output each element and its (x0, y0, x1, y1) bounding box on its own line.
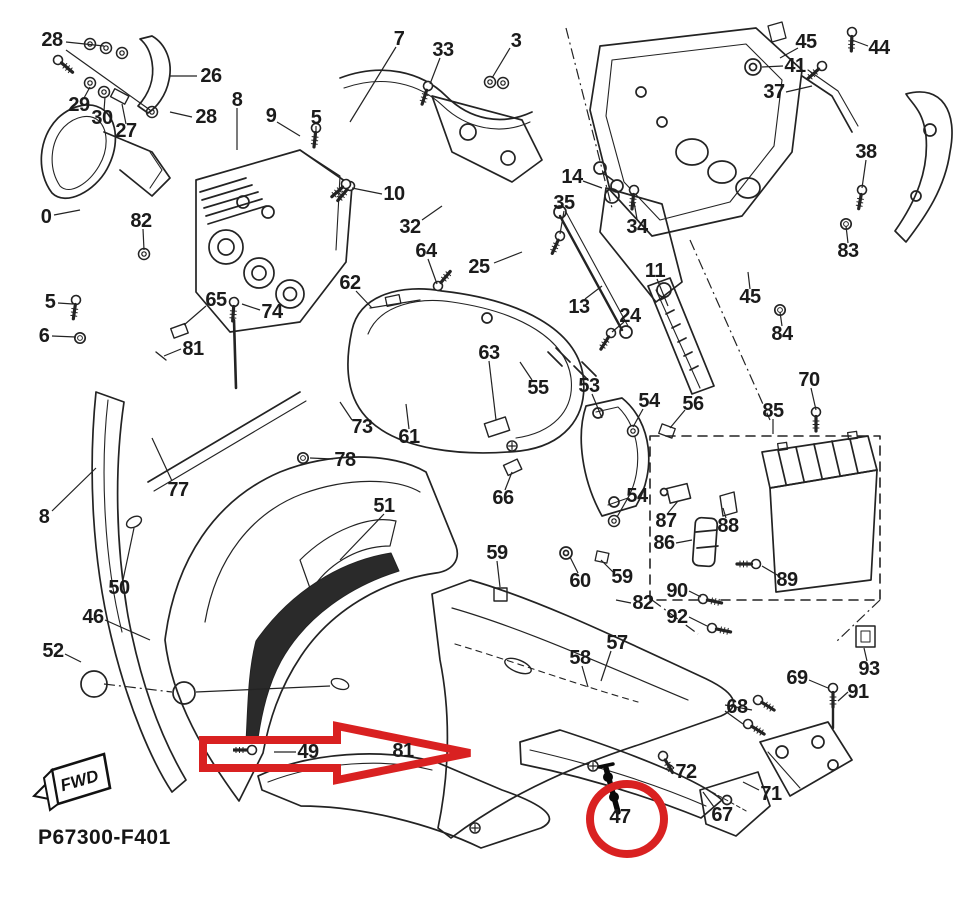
part-label-56: 56 (682, 394, 703, 414)
part-label-41: 41 (784, 56, 805, 76)
part-label-82: 82 (632, 593, 653, 613)
part-label-54: 54 (626, 486, 647, 506)
part-label-63: 63 (478, 343, 499, 363)
part-labels-layer: 2829302726288957333103264253514346213112… (0, 0, 960, 897)
part-label-86: 86 (653, 533, 674, 553)
part-label-72: 72 (675, 762, 696, 782)
part-label-6: 6 (39, 326, 50, 346)
part-label-87: 87 (655, 511, 676, 531)
part-label-35: 35 (553, 193, 574, 213)
diagram-part-code: P67300-F401 (38, 826, 171, 850)
part-label-64: 64 (415, 241, 436, 261)
part-label-24: 24 (619, 306, 640, 326)
part-label-74: 74 (261, 302, 282, 322)
part-label-46: 46 (82, 607, 103, 627)
part-label-52: 52 (42, 641, 63, 661)
part-label-93: 93 (858, 659, 879, 679)
part-label-13: 13 (568, 297, 589, 317)
part-label-58: 58 (569, 648, 590, 668)
part-label-78: 78 (334, 450, 355, 470)
part-label-57: 57 (606, 633, 627, 653)
part-label-27: 27 (115, 121, 136, 141)
part-label-0: 0 (41, 207, 52, 227)
part-label-70: 70 (798, 370, 819, 390)
part-label-81: 81 (182, 339, 203, 359)
part-label-32: 32 (399, 217, 420, 237)
part-label-82: 82 (130, 211, 151, 231)
part-label-89: 89 (776, 570, 797, 590)
part-label-77: 77 (167, 480, 188, 500)
part-label-81: 81 (392, 741, 413, 761)
part-label-53: 53 (578, 376, 599, 396)
parts-diagram: FWD 282930272628895733310326425351434621… (0, 0, 960, 897)
part-label-59: 59 (611, 567, 632, 587)
part-label-44: 44 (868, 38, 889, 58)
part-label-88: 88 (717, 516, 738, 536)
part-label-8: 8 (232, 90, 243, 110)
part-label-83: 83 (837, 241, 858, 261)
part-label-51: 51 (373, 496, 394, 516)
part-label-28: 28 (195, 107, 216, 127)
part-label-38: 38 (855, 142, 876, 162)
part-label-85: 85 (762, 401, 783, 421)
part-label-14: 14 (561, 167, 582, 187)
part-label-91: 91 (847, 682, 868, 702)
part-label-29: 29 (68, 95, 89, 115)
part-label-25: 25 (468, 257, 489, 277)
part-label-28: 28 (41, 30, 62, 50)
part-label-8: 8 (39, 507, 50, 527)
part-label-66: 66 (492, 488, 513, 508)
part-label-11: 11 (645, 261, 665, 281)
part-label-9: 9 (266, 106, 277, 126)
part-label-26: 26 (200, 66, 221, 86)
part-label-69: 69 (786, 668, 807, 688)
part-label-71: 71 (760, 784, 781, 804)
part-label-54: 54 (638, 391, 659, 411)
part-label-33: 33 (432, 40, 453, 60)
part-label-61: 61 (398, 427, 419, 447)
part-label-37: 37 (763, 82, 784, 102)
part-label-55: 55 (527, 378, 548, 398)
part-label-84: 84 (771, 324, 792, 344)
part-label-34: 34 (626, 217, 647, 237)
part-label-3: 3 (511, 31, 522, 51)
part-label-60: 60 (569, 571, 590, 591)
part-label-7: 7 (394, 29, 405, 49)
part-label-47: 47 (609, 807, 630, 827)
part-label-68: 68 (726, 697, 747, 717)
part-label-65: 65 (205, 290, 226, 310)
part-label-90: 90 (666, 581, 687, 601)
part-label-50: 50 (108, 578, 129, 598)
part-label-49: 49 (297, 742, 318, 762)
part-label-92: 92 (666, 607, 687, 627)
part-label-45: 45 (795, 32, 816, 52)
part-label-45: 45 (739, 287, 760, 307)
part-label-59: 59 (486, 543, 507, 563)
part-label-73: 73 (351, 417, 372, 437)
part-label-10: 10 (383, 184, 404, 204)
part-label-5: 5 (45, 292, 56, 312)
part-label-67: 67 (711, 805, 732, 825)
part-label-30: 30 (91, 108, 112, 128)
part-label-5: 5 (311, 108, 322, 128)
part-label-62: 62 (339, 273, 360, 293)
